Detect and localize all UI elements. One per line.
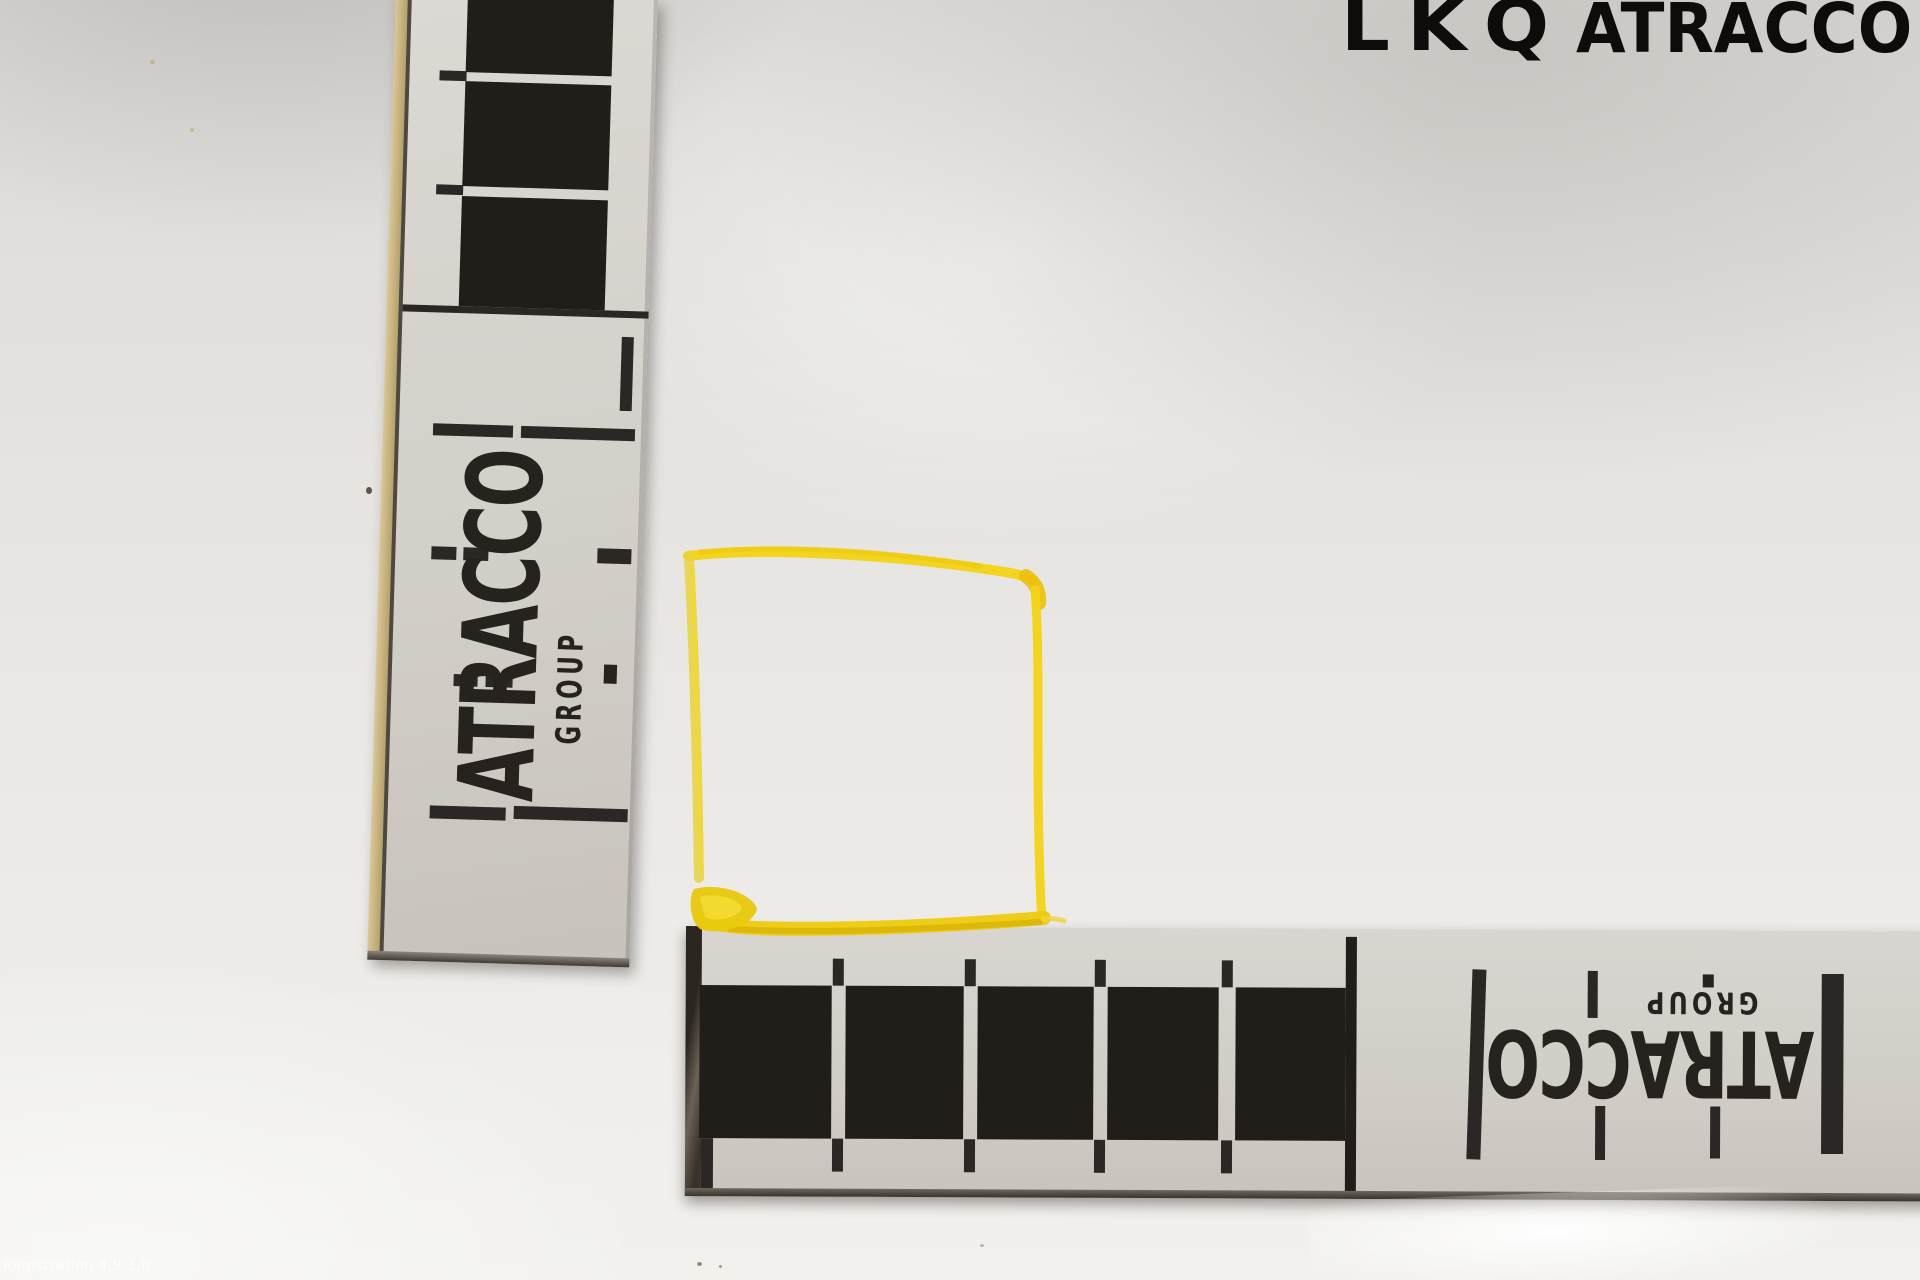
ruler-long-tick: [1821, 974, 1844, 1154]
atracco-print: ATRACCO: [444, 452, 558, 803]
ruler-black-block: [1107, 987, 1219, 1140]
ruler-long-tick: [514, 806, 628, 822]
ruler-tick: [1222, 960, 1233, 987]
lkq-atracco-logo: LKQATRACCO: [1341, 0, 1920, 62]
logo-square-dot: [604, 664, 618, 683]
dust-speck: [366, 487, 372, 494]
ruler-tick: [964, 1139, 975, 1172]
ruler-long-tick: [521, 426, 635, 441]
vertical-scale-ruler: ATRACCO GROUP: [367, 0, 658, 967]
ruler-black-block: [1235, 987, 1346, 1140]
dust-speck: [697, 1262, 702, 1266]
horizontal-ruler-brand: ATRACCO: [1486, 1015, 1815, 1108]
ruler-tick: [597, 548, 631, 564]
ruler-black-block: [977, 986, 1094, 1140]
ruler-tick: [701, 1138, 713, 1194]
ruler-tick: [436, 184, 463, 195]
ruler-black-block: [466, 0, 614, 76]
atracco-wordmark: ATRACCO: [1576, 0, 1912, 64]
ruler-tick: [1094, 1140, 1105, 1173]
dust-speck: [150, 60, 155, 64]
ruler-tick: [832, 1139, 843, 1172]
dust-speck: [719, 1265, 722, 1268]
registration-watermark: Registration 4.9.1.0: [3, 1258, 151, 1274]
dust-speck: [190, 128, 194, 132]
ruler-black-block: [845, 986, 964, 1140]
ruler-end-line: [1345, 937, 1357, 1193]
lkq-wordmark: LKQ: [1341, 0, 1566, 61]
ruler-tick: [1221, 1140, 1232, 1173]
ruler-black-block: [699, 985, 832, 1139]
ruler-long-tick: [429, 805, 505, 820]
group-print: GROUP: [1633, 986, 1769, 1017]
ruler-registration-dash: [620, 337, 634, 411]
ruler-tick: [965, 959, 976, 986]
ruler-black-block: [462, 81, 611, 190]
atracco-print: ATRACCO: [1486, 1008, 1814, 1116]
ruler-tick: [1095, 960, 1106, 987]
ruler-long-tick: [433, 423, 513, 437]
dust-speck: [980, 1244, 984, 1247]
vertical-ruler-brand: ATRACCO GROUP: [444, 452, 594, 804]
horizontal-scale-ruler: ATRACCO GROUP: [685, 926, 1920, 1201]
ruler-tick: [833, 959, 844, 986]
ruler-tick: [439, 70, 466, 81]
photo-of-panel-with-scale-rulers: ATRACCO GROUP ATRAC: [0, 0, 1920, 1280]
logo-square-dot: [1703, 974, 1714, 987]
ruler-long-tick: [1466, 969, 1486, 1159]
ruler-black-block: [459, 196, 608, 310]
